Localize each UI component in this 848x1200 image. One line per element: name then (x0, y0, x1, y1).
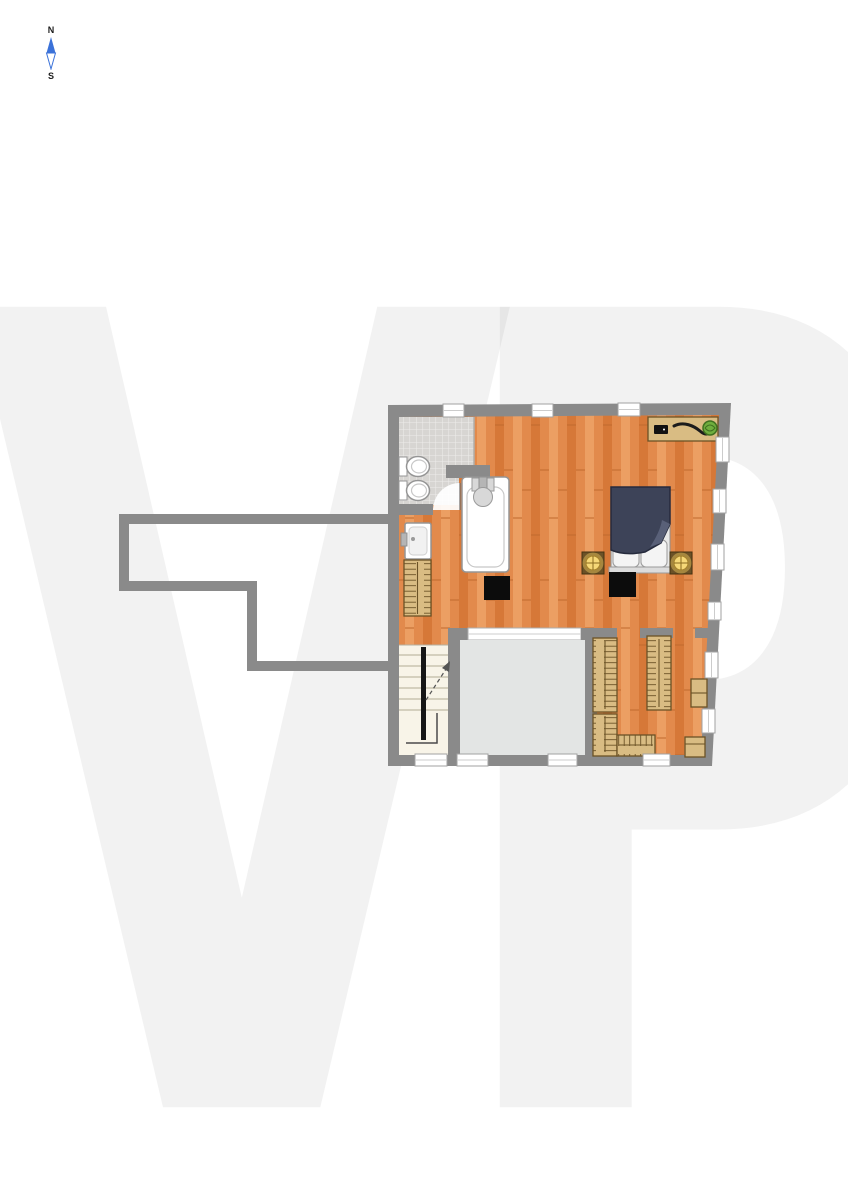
bathroom-south-wall (399, 504, 433, 515)
stair-railing (421, 647, 426, 740)
stair-void-wall (448, 628, 460, 755)
void-north-wall-left (460, 628, 468, 640)
nightstand-lamp-icon-right (670, 552, 692, 574)
window (713, 489, 726, 513)
window (702, 709, 715, 733)
duvet (611, 487, 670, 554)
floor-plan (0, 0, 848, 1200)
page: VP N S (0, 0, 848, 1200)
bathtub-head-wall (446, 465, 490, 478)
black-mat-bathtub (484, 576, 510, 600)
window (457, 754, 488, 766)
double-bed-icon (609, 487, 671, 573)
lower-floor-outline (124, 519, 393, 666)
window (705, 652, 718, 678)
window (548, 754, 577, 766)
wardrobe-icon (404, 560, 431, 616)
bathtub-icon (462, 477, 509, 572)
laptop-icon (654, 425, 668, 434)
window (415, 754, 447, 766)
toilet-icon (399, 457, 430, 477)
tall-wardrobe-icon-left (593, 638, 617, 712)
bidet-icon (399, 481, 430, 501)
window (716, 437, 729, 462)
tall-wardrobe-icon-right (647, 636, 671, 710)
void-area (460, 640, 585, 755)
washbasin-icon (401, 523, 431, 559)
desk-icon (648, 417, 718, 441)
window (443, 404, 464, 417)
window (711, 544, 724, 570)
cabinet-icon (691, 679, 707, 707)
nightstand-lamp-icon-left (582, 552, 604, 574)
window (708, 602, 721, 620)
closet-wall-segment-3 (695, 628, 709, 638)
window (643, 754, 670, 766)
black-mat-bed (609, 572, 636, 597)
closet-wall-segment-1 (597, 628, 617, 638)
staircase (399, 645, 450, 755)
window (618, 403, 640, 416)
window (532, 404, 553, 417)
cabinet-small-icon (685, 737, 705, 757)
